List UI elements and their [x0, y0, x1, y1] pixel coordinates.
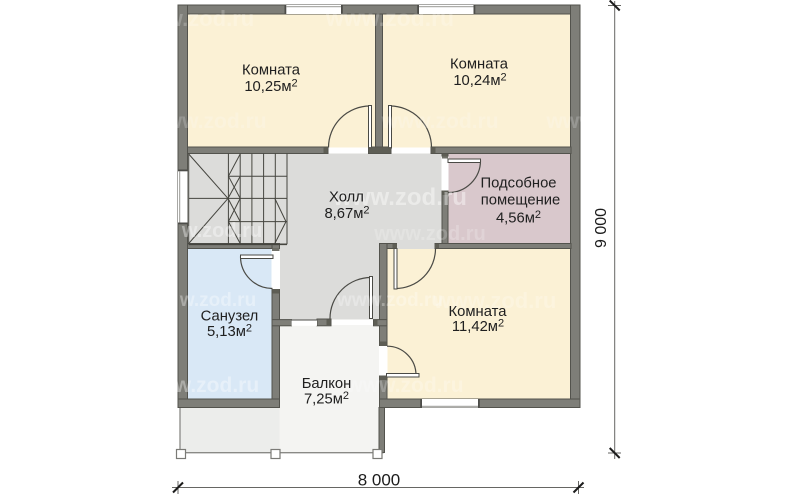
svg-text:www.zod.ru: www.zod.ru [148, 110, 266, 133]
svg-text:9 000: 9 000 [593, 208, 610, 248]
svg-text:www.zod.ru: www.zod.ru [325, 5, 454, 31]
svg-text:Подсобное: Подсобное [480, 175, 556, 191]
svg-text:4,56м2: 4,56м2 [496, 209, 541, 227]
svg-text:7,25м2: 7,25м2 [304, 390, 349, 408]
svg-text:5,13м2: 5,13м2 [207, 322, 252, 340]
svg-text:www.zod.ru: www.zod.ru [373, 223, 485, 245]
svg-text:www.zod.ru: www.zod.ru [545, 110, 663, 133]
svg-text:Холл: Холл [329, 189, 364, 205]
svg-text:w.zod.ru: w.zod.ru [181, 220, 262, 242]
svg-text:w.zod.ru: w.zod.ru [174, 374, 259, 397]
svg-text:11,42м2: 11,42м2 [452, 317, 504, 335]
svg-text:www.zod.ru: www.zod.ru [380, 110, 498, 133]
svg-text:8 000: 8 000 [358, 471, 401, 490]
svg-text:www.zod.ru: www.zod.ru [336, 290, 443, 311]
svg-text:w.zod.ru: w.zod.ru [165, 6, 254, 31]
svg-text:Комната: Комната [450, 56, 509, 72]
svg-text:Комната: Комната [242, 62, 301, 78]
svg-text:10,25м2: 10,25м2 [244, 77, 297, 95]
svg-text:помещение: помещение [481, 192, 561, 208]
svg-text:10,24м2: 10,24м2 [453, 71, 506, 89]
svg-text:www.zod.ru: www.zod.ru [345, 374, 463, 397]
svg-text:8,67м2: 8,67м2 [324, 204, 369, 222]
